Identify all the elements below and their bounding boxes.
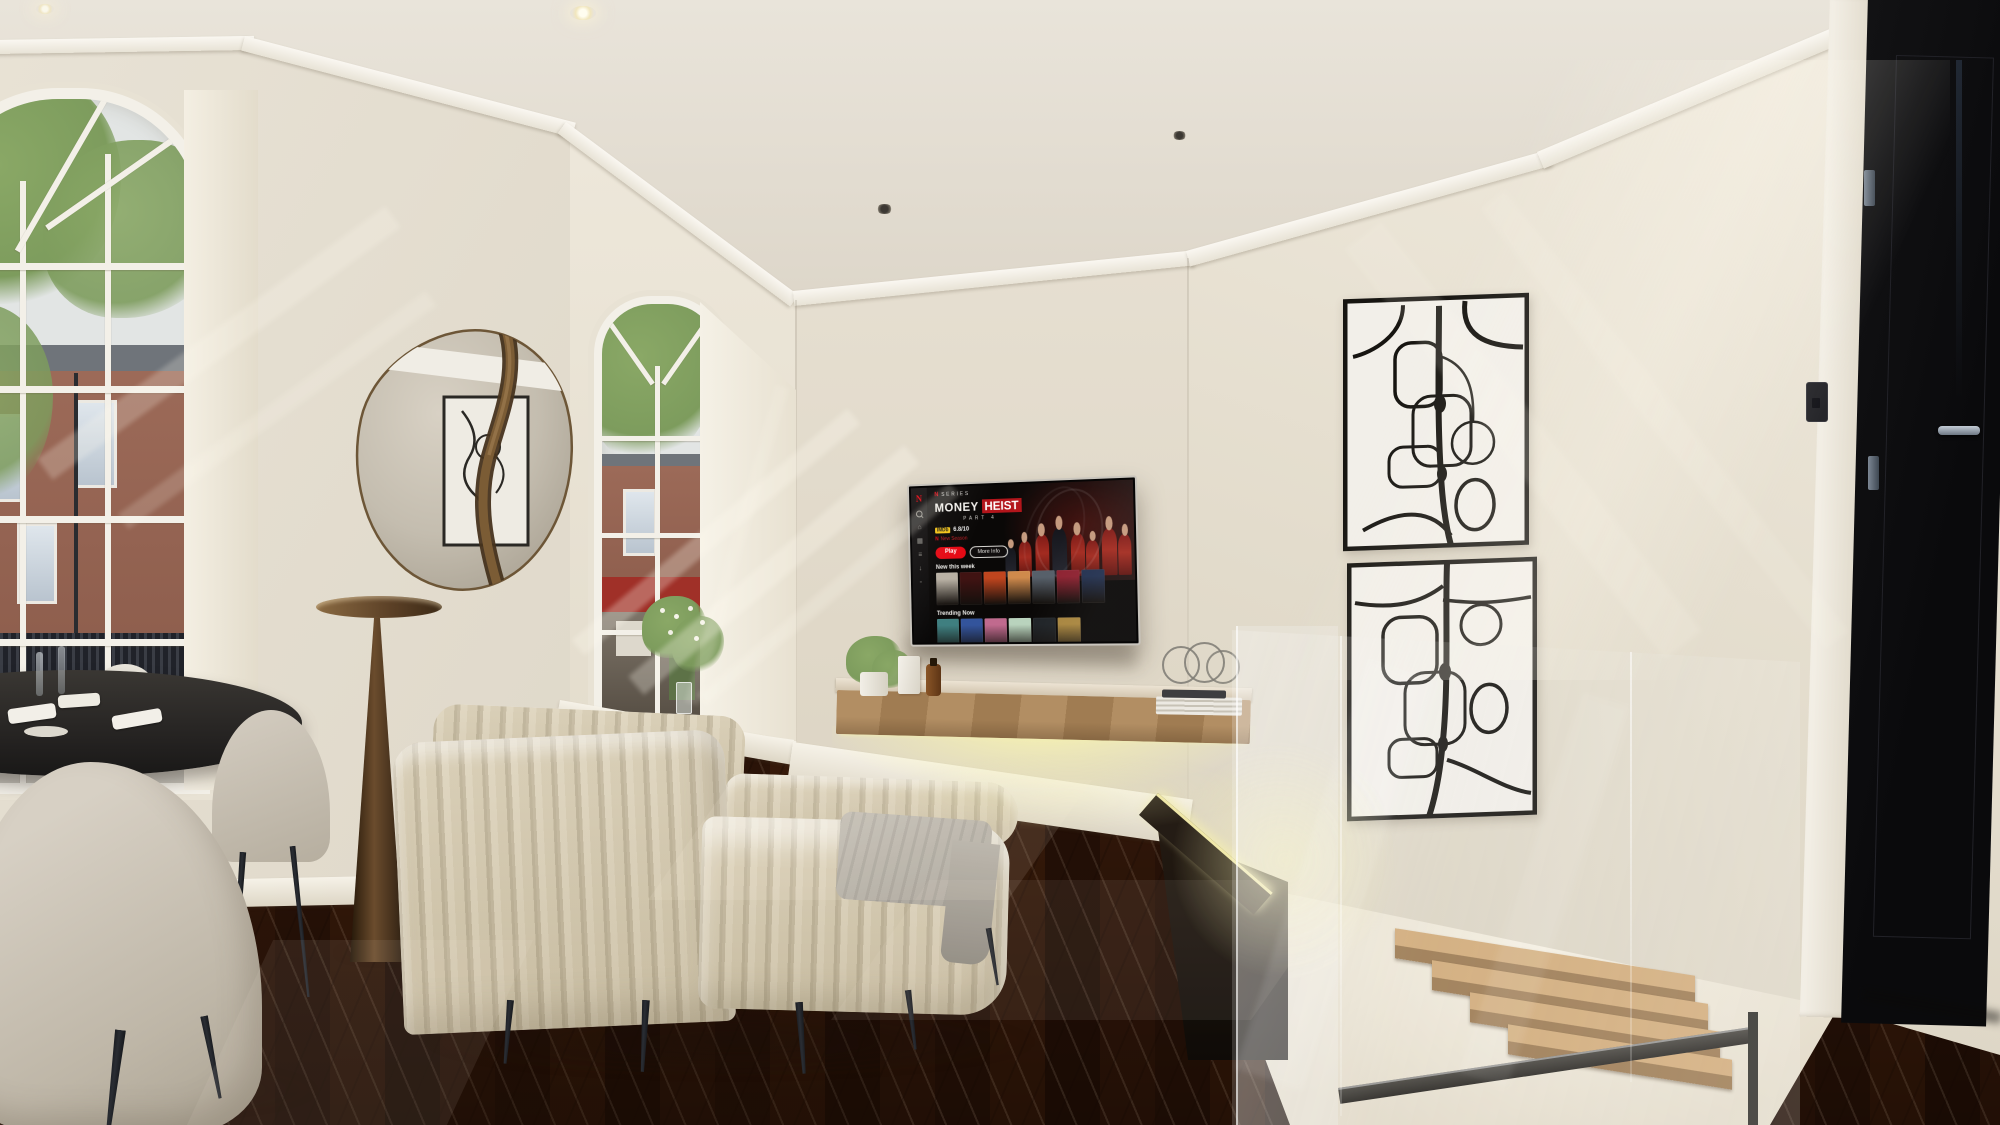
dinner-plate [24, 726, 68, 737]
window-glass [602, 304, 718, 744]
door-handle [1938, 426, 1980, 435]
wall-corner [795, 300, 797, 745]
sofa-back-panel [392, 729, 736, 1035]
chair-leg [288, 846, 313, 998]
plant-flowers [660, 608, 665, 613]
window-muntin [655, 366, 660, 744]
dark-book [1162, 689, 1226, 698]
tv-screen: N ⌂ ▦ ≡ ↓ ◦ [911, 480, 1137, 643]
door-hinge [1868, 456, 1879, 490]
wine-glass [58, 646, 65, 694]
glass-panel-front [1236, 626, 1338, 1125]
screen-glare [911, 480, 1137, 643]
crown-molding [0, 36, 254, 54]
amber-bottle [926, 664, 941, 696]
crown-molding [1537, 23, 1850, 168]
glass-seam [1340, 636, 1342, 1116]
crown-molding [241, 36, 576, 137]
door-hinge [1864, 170, 1875, 206]
plant-vase [676, 682, 692, 714]
door-reflection [1956, 60, 1962, 400]
wine-glass [36, 652, 43, 696]
window-muntin [0, 639, 199, 646]
ceiling-spotlight [1172, 131, 1187, 140]
window-muntin [0, 386, 199, 393]
abstract-line-art-top [1343, 293, 1529, 551]
ceiling-spotlight [36, 4, 54, 14]
crown-molding [558, 122, 799, 307]
window-muntin [602, 533, 718, 538]
lamp-shade-disc [316, 596, 442, 618]
window-muntin [602, 436, 718, 441]
decor-box [898, 656, 920, 694]
ceiling [0, 0, 2000, 310]
switch-toggle [1812, 398, 1820, 408]
tv-frame: N ⌂ ▦ ≡ ↓ ◦ [907, 475, 1141, 646]
bottle-cap [930, 658, 937, 666]
book-stack [1156, 696, 1242, 715]
organic-mirror [350, 325, 580, 595]
window-muntin [0, 263, 199, 270]
wall-mounted-tv: N ⌂ ▦ ≡ ↓ ◦ [907, 475, 1141, 646]
plant-pot [860, 672, 888, 696]
crown-molding [1186, 150, 1552, 267]
ceiling-spotlight [570, 6, 596, 20]
living-room-scene: N ⌂ ▦ ≡ ↓ ◦ [0, 0, 2000, 1125]
crown-molding [793, 250, 1194, 306]
ceiling-spotlight [876, 204, 893, 214]
window-muntin [0, 516, 199, 523]
glass-seam [1630, 652, 1632, 1082]
building-window [623, 489, 657, 557]
arched-window-center [594, 296, 726, 752]
